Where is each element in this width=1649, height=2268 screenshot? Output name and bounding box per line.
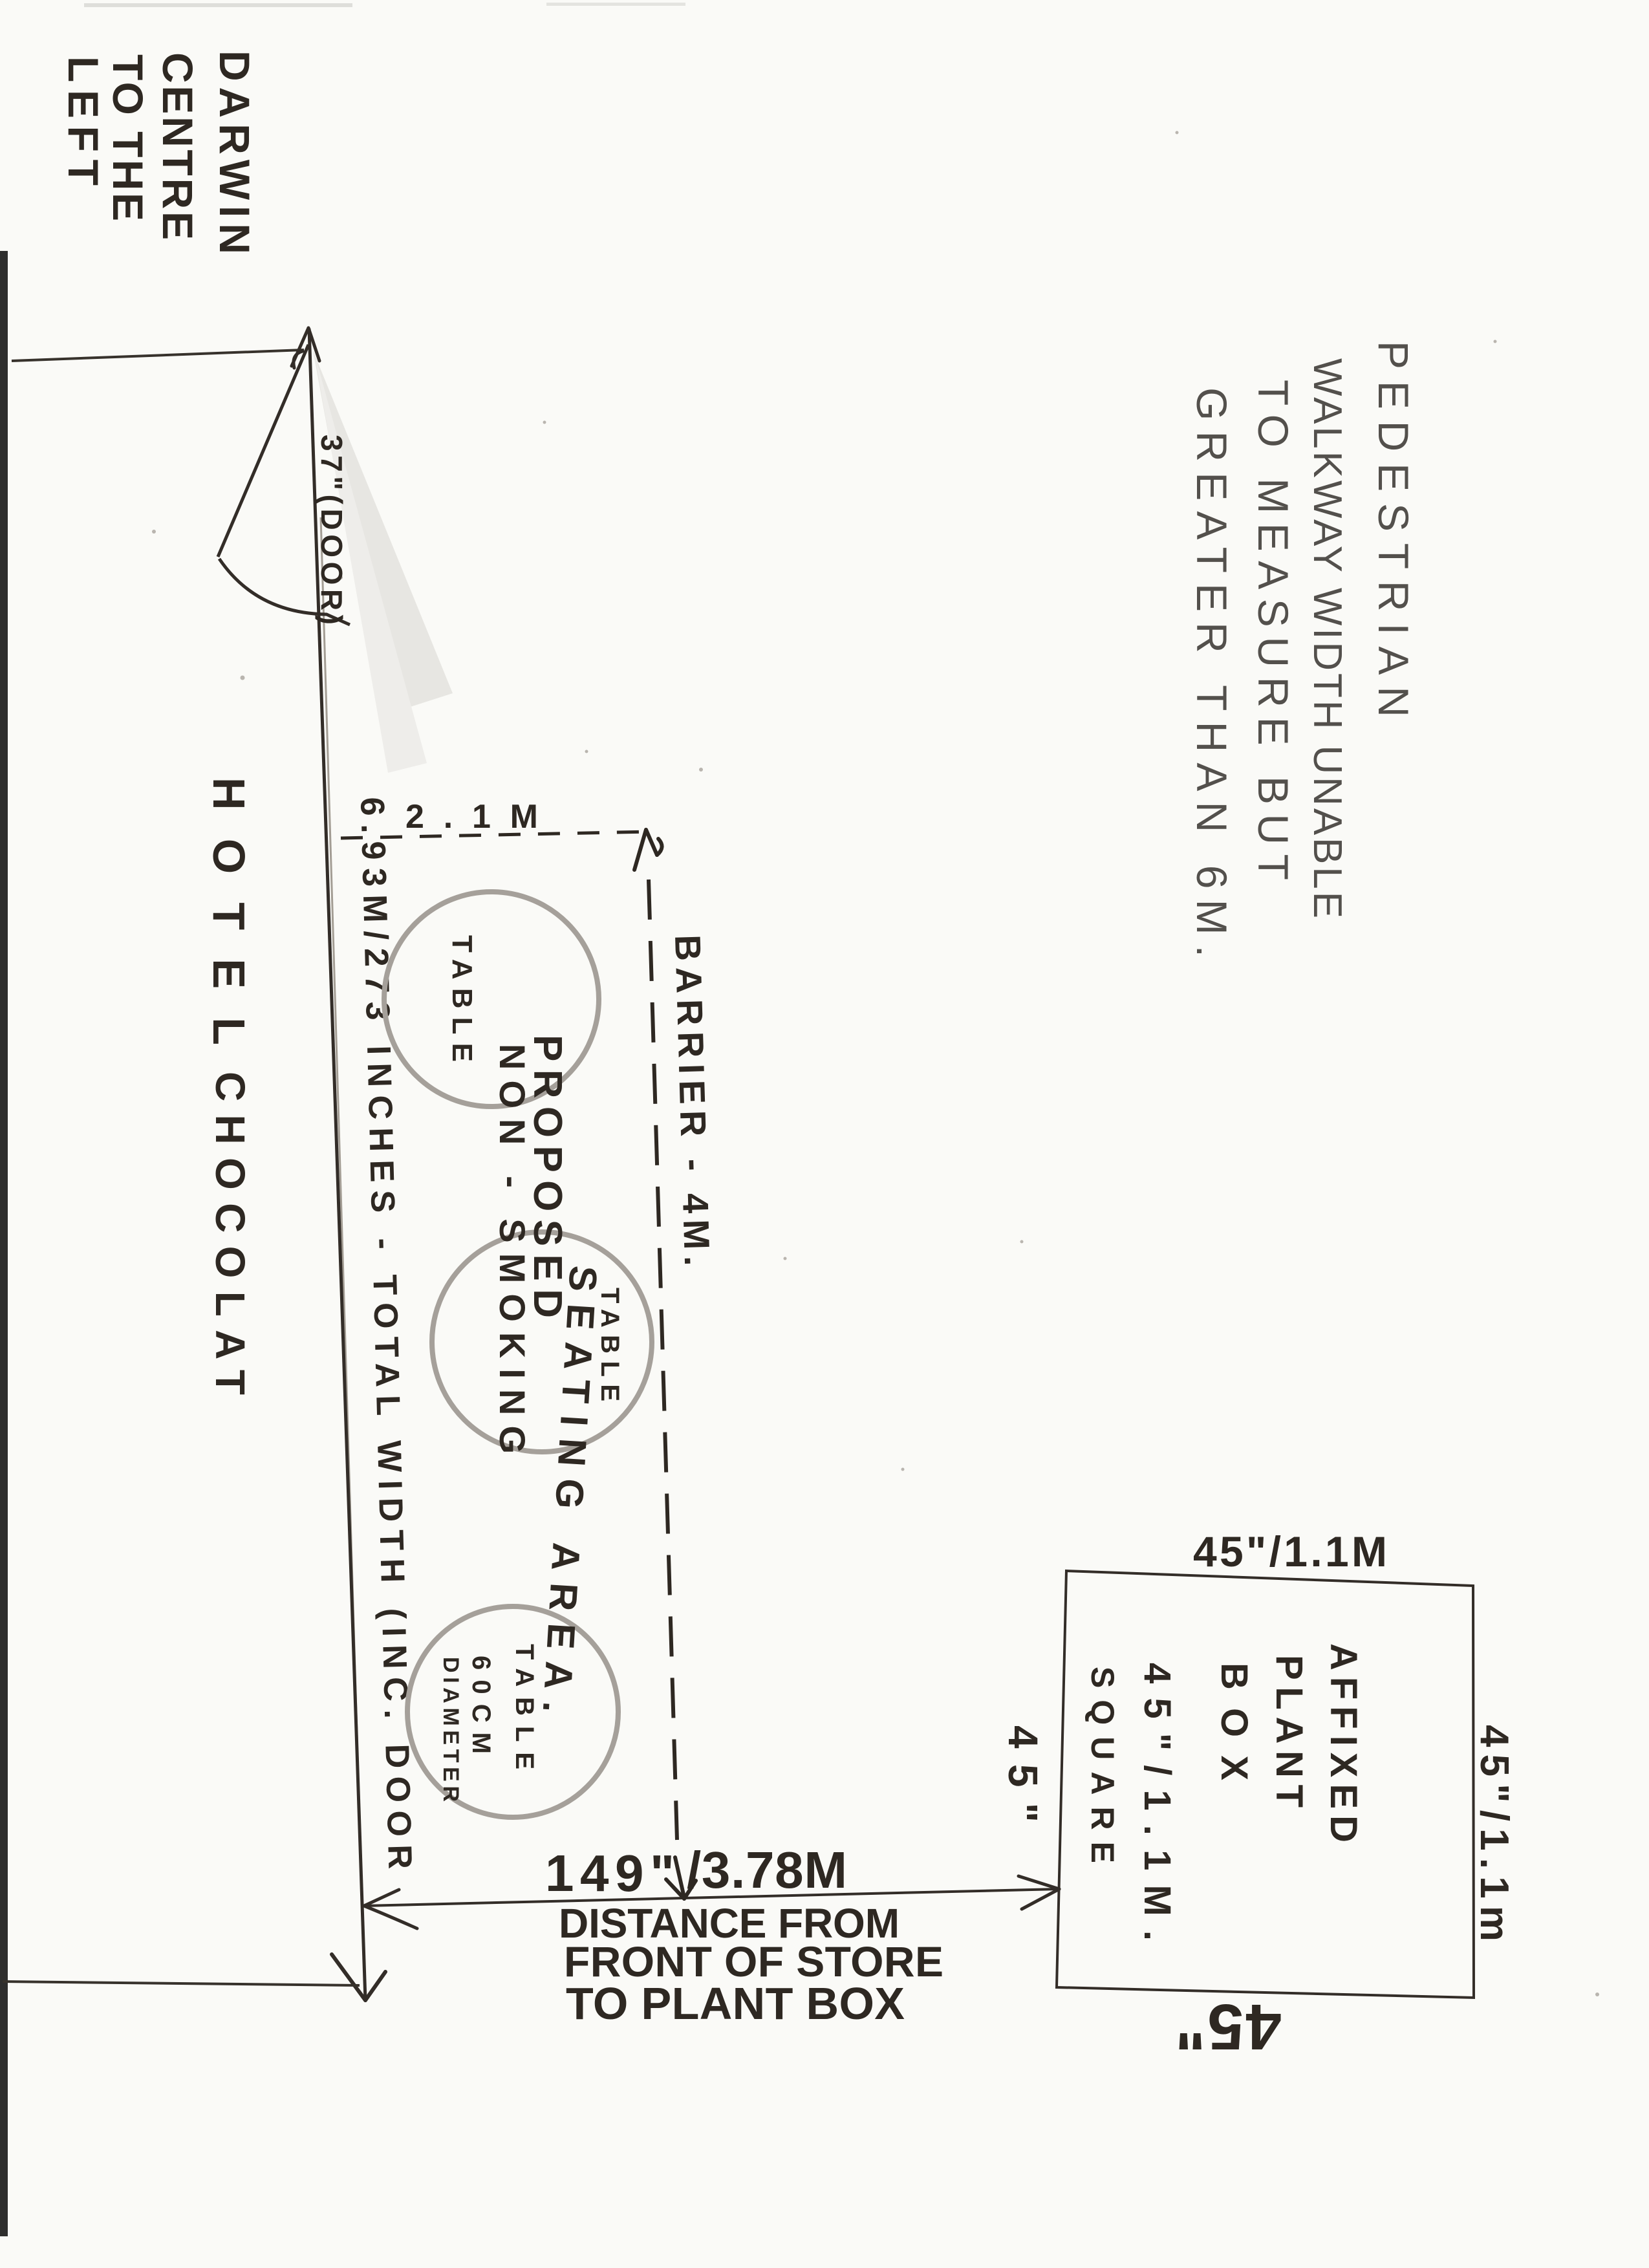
svg-text:45": 45" [1000, 1725, 1046, 1822]
svg-text:TO THE: TO THE [104, 54, 152, 221]
svg-text:TO MEASURE BUT: TO MEASURE BUT [1249, 380, 1297, 880]
svg-text:CENTRE: CENTRE [154, 52, 202, 240]
svg-text:60CM: 60CM [467, 1656, 495, 1754]
svg-text:GREATER THAN 6M.: GREATER THAN 6M. [1188, 387, 1236, 957]
svg-text:TABLE: TABLE [446, 935, 478, 1062]
svg-text:TABLE: TABLE [510, 1644, 539, 1769]
svg-text:BOX: BOX [1213, 1663, 1255, 1780]
svg-text:PLANT: PLANT [1268, 1655, 1310, 1808]
svg-text:HOTEL: HOTEL [204, 777, 254, 1045]
svg-text:PEDESTRIAN: PEDESTRIAN [1370, 341, 1417, 717]
svg-text:45"/1.1m: 45"/1.1m [1472, 1725, 1516, 1941]
svg-text:AFFIXED: AFFIXED [1322, 1643, 1364, 1842]
svg-text:37"(DOOR): 37"(DOOR) [315, 435, 349, 625]
svg-text:LEFT: LEFT [59, 56, 107, 186]
svg-text:45"/1.1M.: 45"/1.1M. [1136, 1663, 1178, 1941]
svg-text:DIAMETER: DIAMETER [438, 1657, 463, 1802]
svg-text:/3.78M: /3.78M [687, 1841, 847, 1899]
svg-text:45": 45" [1175, 1991, 1282, 2063]
svg-text:CHOCOLAT: CHOCOLAT [207, 1072, 253, 1395]
svg-text:BARRIER - 4M.: BARRIER - 4M. [667, 934, 718, 1266]
svg-text:TO PLANT BOX: TO PLANT BOX [566, 1978, 905, 2029]
svg-text:NON - SMOKING: NON - SMOKING [492, 1044, 533, 1454]
svg-text:45"/1.1M: 45"/1.1M [1193, 1528, 1387, 1575]
svg-text:WALKWAY WIDTH UNABLE: WALKWAY WIDTH UNABLE [1305, 358, 1350, 918]
svg-text:DARWIN: DARWIN [211, 50, 259, 254]
svg-text:SQUARE: SQUARE [1084, 1667, 1121, 1863]
svg-text:2.1M: 2.1M [405, 798, 538, 836]
svg-text:149": 149" [545, 1844, 674, 1902]
